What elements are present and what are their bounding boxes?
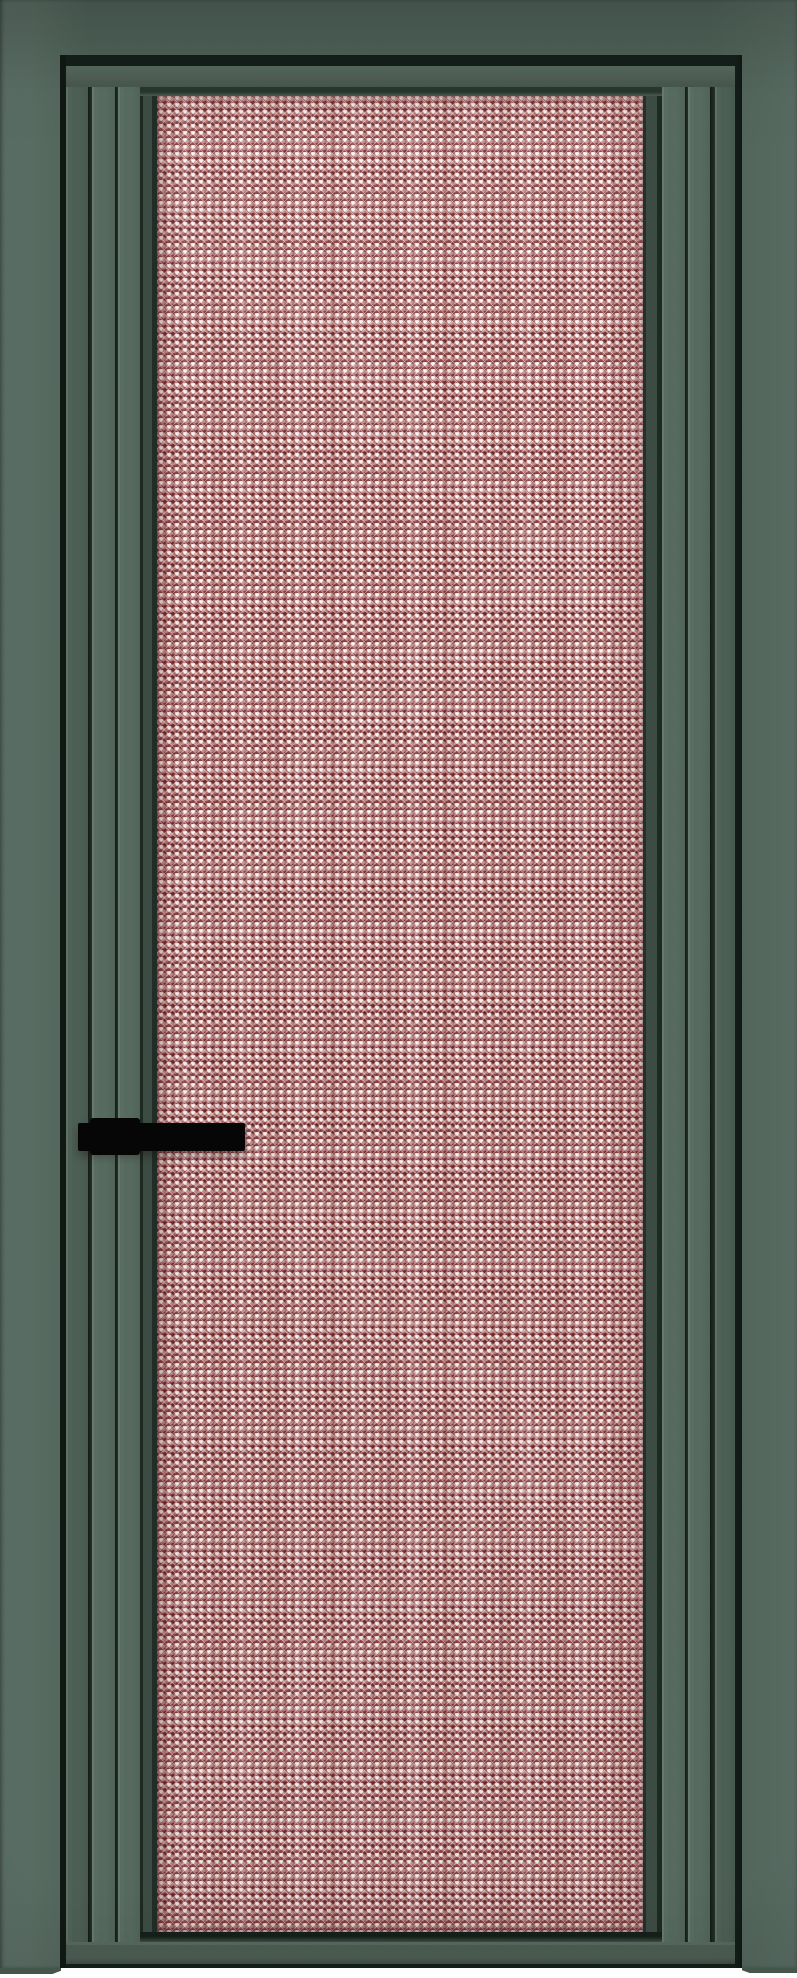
floor-background bbox=[0, 1968, 797, 1978]
door-product-image bbox=[0, 0, 797, 1978]
right-stile-band-inner bbox=[662, 87, 685, 1942]
right-stile-band-mid bbox=[688, 87, 710, 1942]
glazing-bead-top bbox=[140, 87, 662, 96]
casing-foot-left bbox=[0, 1968, 61, 1974]
glazing-bead-bottom bbox=[140, 1932, 662, 1942]
left-stile-band-outer bbox=[66, 87, 88, 1942]
left-stile-band-mid bbox=[92, 87, 115, 1942]
door-handle-base bbox=[90, 1118, 140, 1155]
right-stile-band-outer bbox=[715, 87, 735, 1942]
leaf-top-rail bbox=[66, 66, 735, 87]
door bbox=[0, 0, 797, 1968]
casing-foot-right bbox=[742, 1968, 797, 1973]
glazing-bead-left bbox=[140, 87, 157, 1942]
glazing-bead-right bbox=[643, 87, 662, 1942]
left-stile-band-inner bbox=[118, 87, 140, 1942]
glass-panel bbox=[157, 96, 643, 1932]
leaf-bottom-rail bbox=[66, 1942, 735, 1964]
